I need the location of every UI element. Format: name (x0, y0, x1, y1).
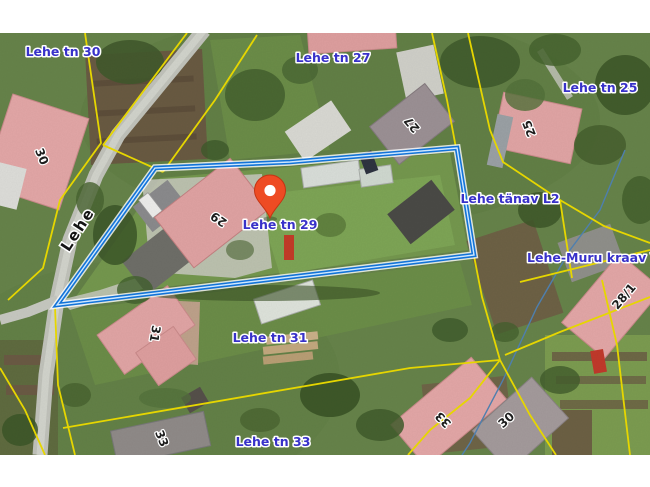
address-label: Lehe-Muru kraav V2 (527, 250, 650, 265)
address-label: Lehe tn 25 (563, 80, 638, 95)
address-label: Lehe tn 27 (296, 50, 371, 65)
address-label: Lehe tn 33 (236, 434, 311, 449)
pin-hole (264, 185, 275, 196)
aerial-map[interactable]: 30 27 25 29 31 33 28/1 33 30 Lehe Lehe t… (0, 0, 650, 487)
address-label: Lehe tänav L2 (460, 191, 559, 206)
address-label: Lehe tn 31 (233, 330, 308, 345)
map-viewport[interactable]: 30 27 25 29 31 33 28/1 33 30 Lehe Lehe t… (0, 0, 650, 487)
address-label: Lehe tn 30 (26, 44, 101, 59)
building-number: 31 (147, 324, 164, 343)
pin-address-label: Lehe tn 29 (243, 217, 318, 232)
